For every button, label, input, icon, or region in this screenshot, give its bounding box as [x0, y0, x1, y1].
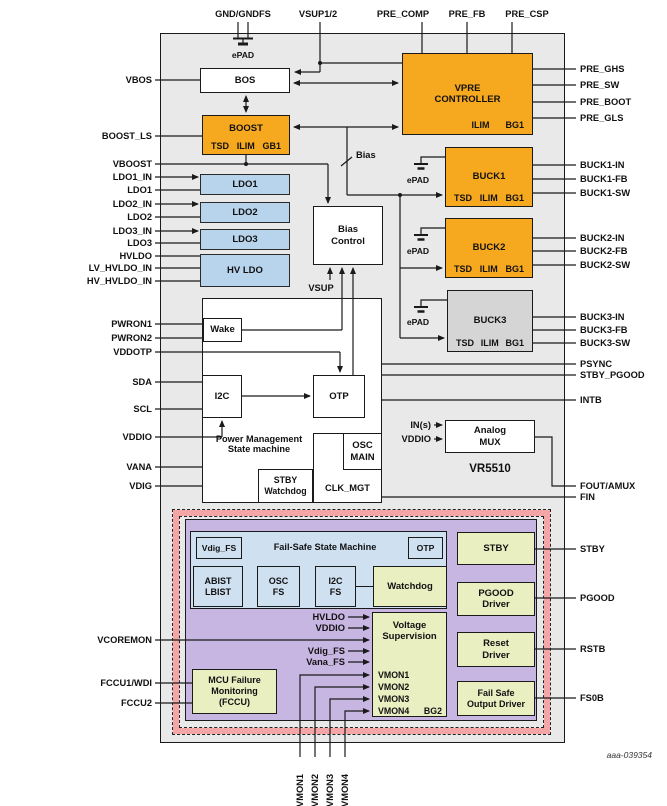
pin-pwron2: PWRON2 — [10, 333, 152, 343]
pin-vcoremon: VCOREMON — [10, 635, 152, 645]
reset-driver-block: Reset Driver — [457, 632, 535, 667]
pin-rstb: RSTB — [580, 644, 605, 654]
pin-intb: INTB — [580, 395, 602, 405]
osc-fs-block: OSC FS — [257, 566, 300, 607]
pin-vmon1: VMON1 — [294, 761, 306, 806]
pin-ldo3: LDO3 — [10, 238, 152, 248]
pin-stby: STBY — [580, 544, 605, 554]
vmon2-row: VMON2 — [378, 682, 409, 693]
buck1-block: BUCK1 TSDILIMBG1 — [445, 147, 533, 207]
bias-control-block: Bias Control — [313, 206, 383, 265]
pin-psync: PSYNC — [580, 359, 612, 369]
pin-pre-ghs: PRE_GHS — [580, 64, 624, 74]
pin-ldo1-in: LDO1_IN — [10, 172, 152, 182]
failsafe-state-machine-label: Fail-Safe State Machine — [245, 542, 405, 552]
pin-fin: FIN — [580, 492, 595, 502]
pin-vmon4: VMON4 — [339, 761, 351, 806]
pin-vmon2: VMON2 — [309, 761, 321, 806]
pin-vddio: VDDIO — [10, 432, 152, 442]
pin-pre-boot: PRE_BOOT — [580, 97, 631, 107]
vmon1-row: VMON1 — [378, 670, 409, 681]
clk-mgt-label: CLK_MGT — [313, 483, 382, 493]
vmon3-row: VMON3 — [378, 694, 409, 705]
buck3-title: BUCK3 — [474, 315, 507, 326]
pin-buck1-sw: BUCK1-SW — [580, 188, 630, 198]
pin-pre-csp: PRE_CSP — [477, 9, 577, 19]
vpre-title: VPRE CONTROLLER — [435, 83, 501, 106]
ldo2-block: LDO2 — [200, 202, 290, 223]
vmon4-row: VMON4 — [378, 706, 409, 717]
buck2-block: BUCK2 TSDILIMBG1 — [445, 218, 533, 278]
buck1-title: BUCK1 — [473, 171, 506, 182]
pin-buck1-fb: BUCK1-FB — [580, 174, 628, 184]
bias-label: Bias — [356, 150, 376, 160]
watchdog-block: Watchdog — [373, 566, 447, 607]
pin-boost-ls: BOOST_LS — [10, 131, 152, 141]
pin-buck1-in: BUCK1-IN — [580, 160, 624, 170]
pin-buck2-sw: BUCK2-SW — [580, 260, 630, 270]
voltage-supervision-title: Voltage Supervision — [382, 620, 436, 643]
chip-name-label: VR5510 — [450, 463, 530, 475]
pin-pre-gls: PRE_GLS — [580, 113, 623, 123]
pin-pgood: PGOOD — [580, 593, 615, 603]
pin-vddotp: VDDOTP — [10, 347, 152, 357]
pmsm-label: Power Management State machine — [205, 434, 313, 454]
pin-sda: SDA — [10, 377, 152, 387]
vdig-fs-block: Vdig_FS — [196, 537, 242, 559]
pin-vdig: VDIG — [10, 481, 152, 491]
epad-buck2-label: ePAD — [400, 246, 436, 256]
mcu-failure-monitoring-block: MCU Failure Monitoring (FCCU) — [192, 669, 277, 714]
pin-scl: SCL — [10, 404, 152, 414]
failsafe-in-vdig-fs-label: Vdig_FS — [245, 646, 345, 656]
vddio-mux-label: VDDIO — [390, 434, 431, 444]
i2c-block: I2C — [202, 375, 242, 418]
boost-block: BOOST TSDILIMGB1 — [202, 115, 290, 155]
fail-safe-output-driver-block: Fail Safe Output Driver — [457, 681, 535, 716]
failsafe-in-hvldo-label: HVLDO — [245, 612, 345, 622]
stby-watchdog-block: STBY Watchdog — [258, 469, 313, 503]
pin-buck2-fb: BUCK2-FB — [580, 246, 628, 256]
ins-label: IN(s) — [390, 420, 431, 430]
stby-block: STBY — [457, 532, 535, 565]
boost-title: BOOST — [229, 123, 263, 134]
buck2-title: BUCK2 — [473, 242, 506, 253]
wake-block: Wake — [203, 318, 242, 342]
bos-block: BOS — [200, 68, 290, 93]
ldo1-block: LDO1 — [200, 174, 290, 195]
pin-vmon3: VMON3 — [324, 761, 336, 806]
pin-ldo1: LDO1 — [10, 185, 152, 195]
voltage-supervision-block: Voltage Supervision VMON1 VMON2 VMON3 VM… — [372, 612, 447, 717]
pin-vbos: VBOS — [10, 75, 152, 85]
bg2-label: BG2 — [424, 706, 442, 717]
hv-ldo-block: HV LDO — [200, 254, 290, 287]
epad-buck1-label: ePAD — [400, 175, 436, 185]
pin-buck3-sw: BUCK3-SW — [580, 338, 630, 348]
pin-ldo3-in: LDO3_IN — [10, 226, 152, 236]
buck3-block: BUCK3 TSDILIMBG1 — [447, 290, 533, 352]
failsafe-in-vana-fs-label: Vana_FS — [245, 657, 345, 667]
failsafe-in-vddio-label: VDDIO — [245, 623, 345, 633]
abist-lbist-block: ABIST LBIST — [193, 566, 243, 607]
pin-pwron1: PWRON1 — [10, 319, 152, 329]
pin-buck3-in: BUCK3-IN — [580, 312, 624, 322]
i2cfs-watchdog-connector — [356, 586, 373, 587]
vr5510-block-diagram: GND/GNDFS VSUP1/2 PRE_COMP PRE_FB PRE_CS… — [0, 0, 667, 806]
pin-lv-hvldo-in: LV_HVLDO_IN — [10, 263, 152, 273]
pin-stby-pgood: STBY_PGOOD — [580, 370, 645, 380]
pin-fout-amux: FOUT/AMUX — [580, 481, 635, 491]
ldo3-block: LDO3 — [200, 229, 290, 250]
pin-hv-hvldo-in: HV_HVLDO_IN — [10, 276, 152, 286]
pin-pre-sw: PRE_SW — [580, 80, 619, 90]
pin-vana: VANA — [10, 462, 152, 472]
vpre-controller-block: VPRE CONTROLLER ILIMBG1 — [402, 53, 533, 135]
pgood-driver-block: PGOOD Driver — [457, 582, 535, 616]
vsup-label: VSUP — [303, 283, 339, 293]
pin-vboost: VBOOST — [10, 159, 152, 169]
pin-ldo2: LDO2 — [10, 212, 152, 222]
epad-buck3-label: ePAD — [400, 317, 436, 327]
pin-fs0b: FS0B — [580, 693, 604, 703]
osc-main-block: OSC MAIN — [343, 433, 382, 470]
pin-fccu1-wdi: FCCU1/WDI — [10, 678, 152, 688]
otp-block: OTP — [313, 375, 365, 418]
i2c-fs-block: I2C FS — [315, 566, 356, 607]
pin-ldo2-in: LDO2_IN — [10, 199, 152, 209]
pin-hvldo: HVLDO — [10, 251, 152, 261]
otp-fs-block: OTP — [408, 537, 443, 559]
figure-id: aaa-039354 — [540, 750, 652, 760]
epad-top-label: ePAD — [225, 50, 261, 60]
pin-buck2-in: BUCK2-IN — [580, 233, 624, 243]
pin-buck3-fb: BUCK3-FB — [580, 325, 628, 335]
pin-fccu2: FCCU2 — [10, 698, 152, 708]
analog-mux-block: Analog MUX — [445, 420, 535, 453]
